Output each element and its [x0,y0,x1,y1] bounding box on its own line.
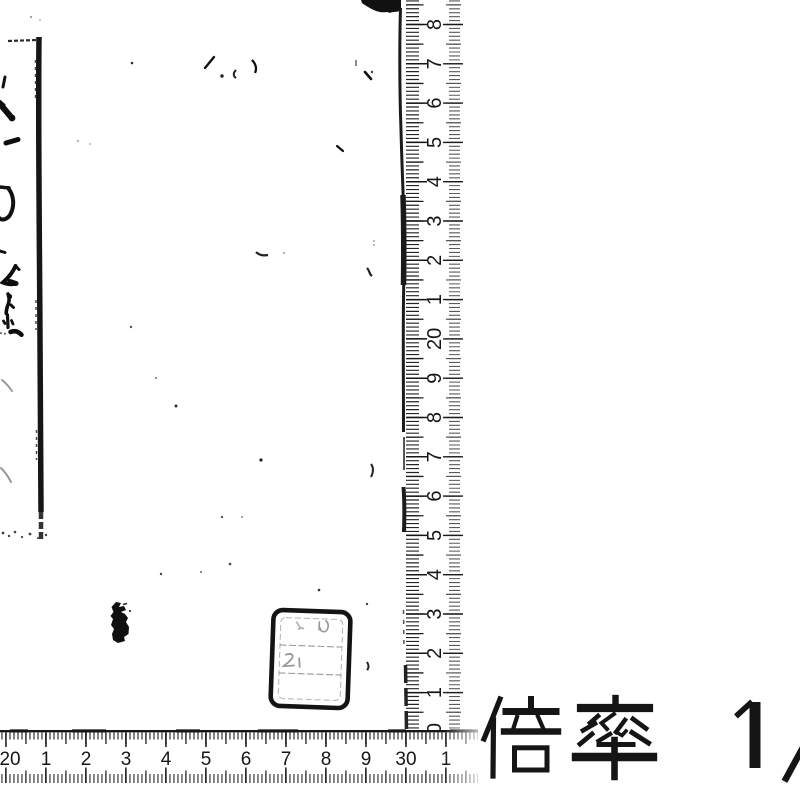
svg-text:9: 9 [361,749,372,770]
svg-text:7: 7 [424,58,446,69]
svg-text:9: 9 [424,373,446,384]
svg-text:20: 20 [0,749,21,770]
svg-text:30: 30 [395,749,416,770]
svg-text:7: 7 [281,749,292,770]
svg-text:3: 3 [424,608,446,619]
svg-text:4: 4 [161,749,172,770]
svg-text:8: 8 [424,19,446,30]
svg-text:4: 4 [424,569,446,580]
svg-text:6: 6 [424,98,446,109]
svg-text:1: 1 [424,294,446,305]
svg-text:8: 8 [424,412,446,423]
svg-text:2: 2 [424,648,446,659]
svg-text:5: 5 [201,749,212,770]
svg-text:3: 3 [121,749,132,770]
svg-text:1: 1 [424,687,446,698]
svg-text:8: 8 [321,749,332,770]
svg-text:2: 2 [424,255,446,266]
svg-text:4: 4 [424,176,446,187]
svg-text:1: 1 [41,749,52,770]
svg-text:3: 3 [424,215,446,226]
svg-text:5: 5 [424,137,446,148]
svg-text:6: 6 [241,749,252,770]
svg-text:6: 6 [424,491,446,502]
svg-text:20: 20 [424,328,446,350]
svg-text:7: 7 [424,451,446,462]
svg-text:2: 2 [81,749,92,770]
svg-text:5: 5 [424,530,446,541]
